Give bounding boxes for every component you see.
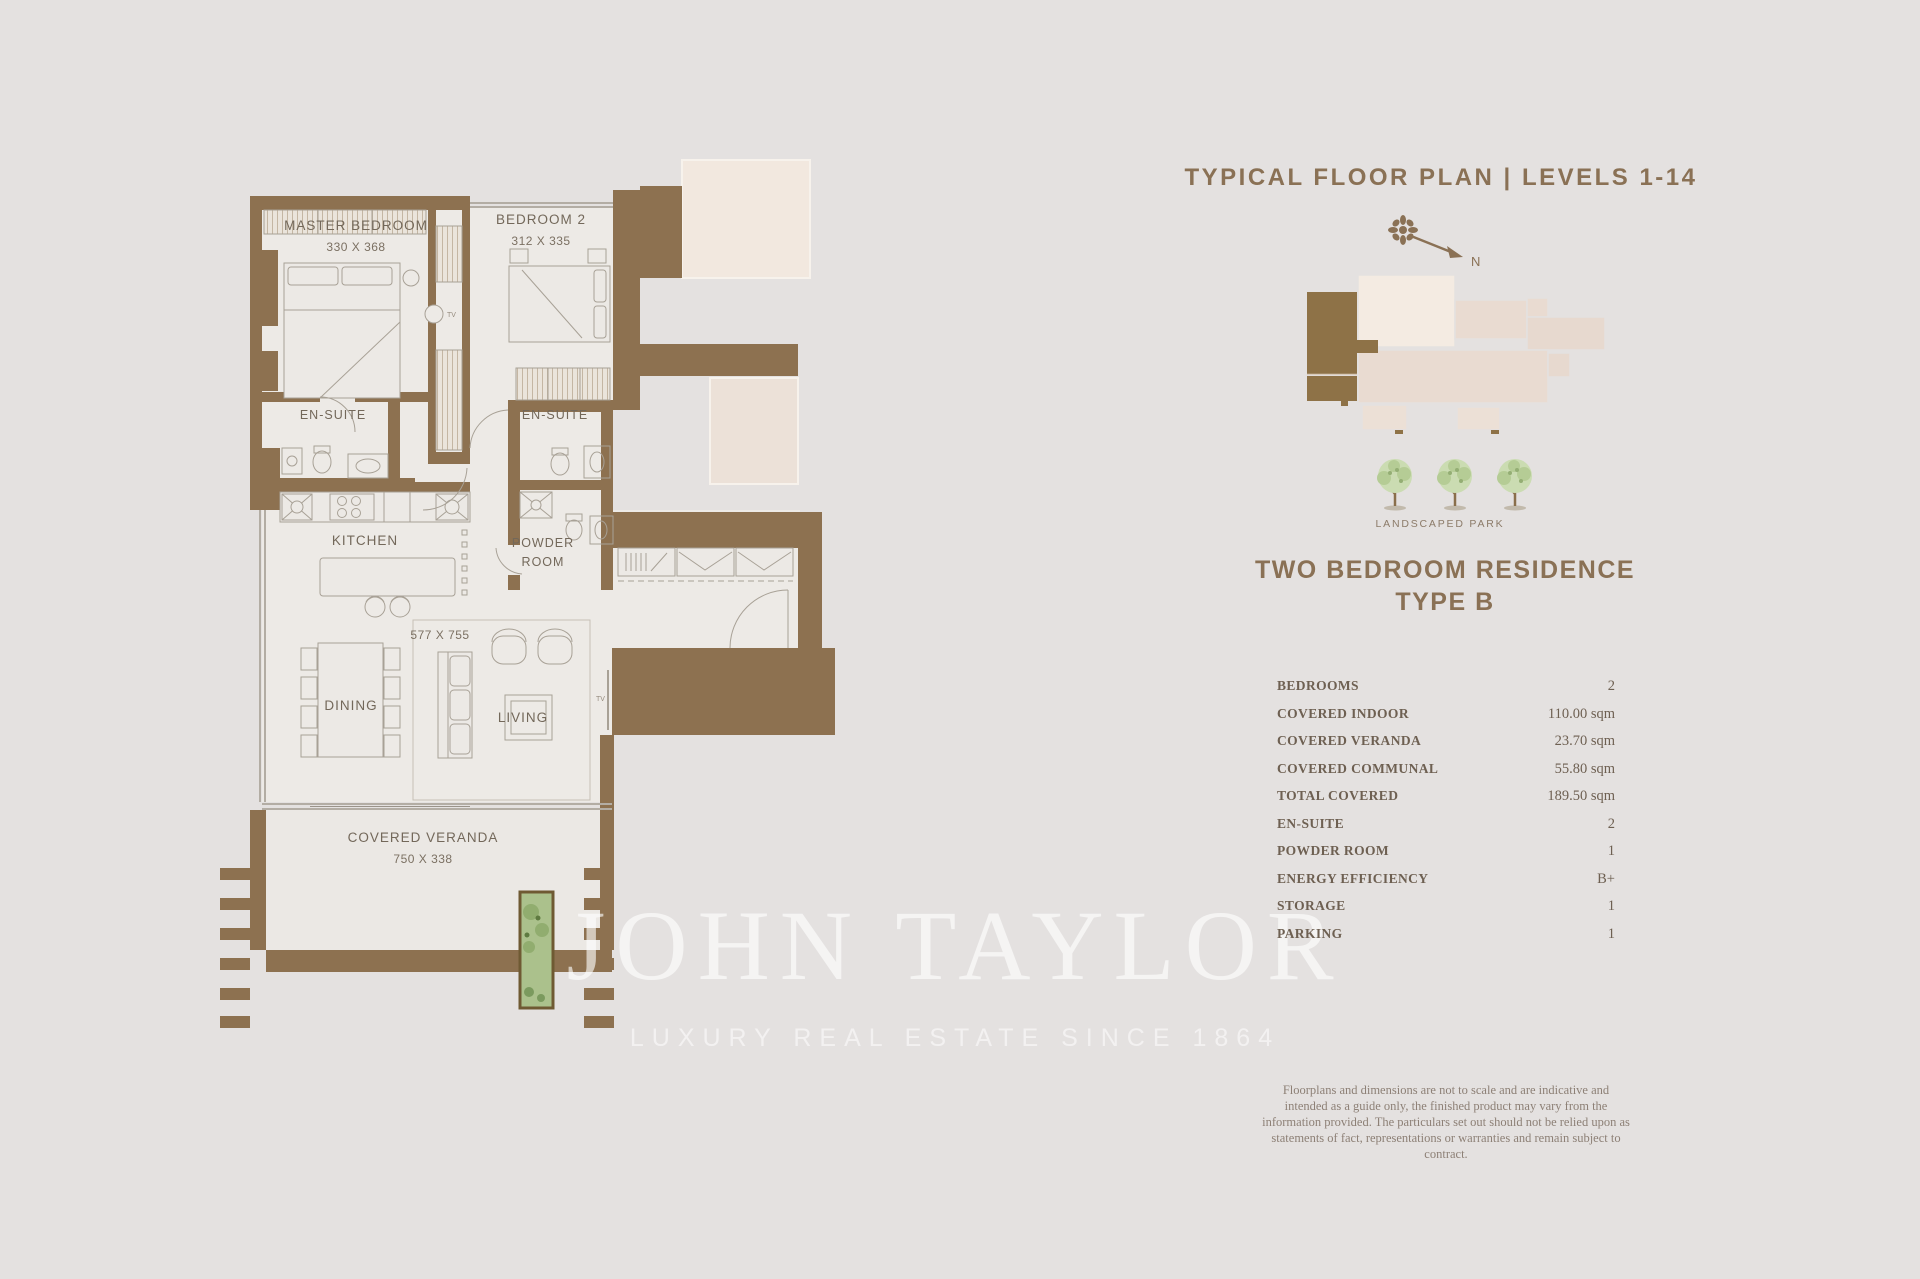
compass-north-label: N bbox=[1471, 254, 1481, 269]
spec-label: PARKING bbox=[1277, 926, 1343, 942]
spec-row-ensuite: EN-SUITE 2 bbox=[1277, 816, 1615, 833]
label-ensuite-right: EN-SUITE bbox=[495, 408, 615, 422]
residence-title-line1: TWO BEDROOM RESIDENCE bbox=[1145, 556, 1745, 585]
key-plan-mark-2 bbox=[1491, 430, 1499, 434]
label-living: LIVING bbox=[463, 710, 583, 725]
tree-icon bbox=[1437, 459, 1472, 511]
spec-label: EN-SUITE bbox=[1277, 816, 1344, 832]
label-master-bedroom: MASTER BEDROOM bbox=[266, 218, 446, 233]
label-covered-veranda-dims: 750 X 338 bbox=[323, 852, 523, 866]
spec-label: TOTAL COVERED bbox=[1277, 788, 1398, 804]
tree-icon bbox=[1377, 459, 1412, 511]
spec-value: 189.50 sqm bbox=[1547, 788, 1615, 805]
spec-row-total-covered: TOTAL COVERED 189.50 sqm bbox=[1277, 788, 1615, 805]
spec-label: COVERED COMMUNAL bbox=[1277, 761, 1438, 777]
watermark-brand: JOHN TAYLOR bbox=[545, 888, 1365, 1003]
label-kitchen: KITCHEN bbox=[305, 533, 425, 548]
label-powder-room: POWDER ROOM bbox=[502, 534, 584, 572]
tv-label-living: TV bbox=[596, 696, 605, 703]
spec-row-powder-room: POWDER ROOM 1 bbox=[1277, 843, 1615, 860]
compass-arrow-line bbox=[1411, 236, 1451, 252]
spec-value: 2 bbox=[1608, 816, 1615, 833]
compass-rosette bbox=[1388, 215, 1418, 245]
compass-arrowhead bbox=[1447, 246, 1463, 258]
spec-value: 23.70 sqm bbox=[1555, 733, 1615, 750]
spec-label: STORAGE bbox=[1277, 898, 1346, 914]
key-plan-blocks bbox=[1358, 275, 1605, 430]
specs-table: BEDROOMS 2 COVERED INDOOR 110.00 sqm COV… bbox=[1277, 678, 1615, 953]
label-bedroom-2-dims: 312 X 335 bbox=[471, 234, 611, 248]
disclaimer-text: Floorplans and dimensions are not to sca… bbox=[1260, 1082, 1632, 1162]
page-title: TYPICAL FLOOR PLAN | LEVELS 1-14 bbox=[1141, 164, 1741, 192]
brochure-page: TV TV MASTER BEDROOM 330 X 368 BEDROOM 2… bbox=[0, 0, 1920, 1279]
tv-label-closet: TV bbox=[447, 312, 456, 319]
label-living-dining-dims: 577 X 755 bbox=[380, 628, 500, 642]
landscaped-park-trees bbox=[1370, 456, 1540, 516]
landscaped-park-label: LANDSCAPED PARK bbox=[1290, 518, 1590, 530]
spec-label: POWDER ROOM bbox=[1277, 843, 1389, 859]
spec-row-covered-veranda: COVERED VERANDA 23.70 sqm bbox=[1277, 733, 1615, 750]
spec-row-storage: STORAGE 1 bbox=[1277, 898, 1615, 915]
communal-core bbox=[682, 160, 810, 484]
tree-icon bbox=[1497, 459, 1532, 511]
residence-title-line2: TYPE B bbox=[1145, 588, 1745, 617]
key-plan-mark-1 bbox=[1395, 430, 1403, 434]
spec-label: COVERED VERANDA bbox=[1277, 733, 1421, 749]
spec-value: 1 bbox=[1608, 926, 1615, 943]
label-master-bedroom-dims: 330 X 368 bbox=[266, 240, 446, 254]
spec-row-covered-indoor: COVERED INDOOR 110.00 sqm bbox=[1277, 706, 1615, 723]
label-covered-veranda: COVERED VERANDA bbox=[323, 830, 523, 845]
spec-value: 2 bbox=[1608, 678, 1615, 695]
spec-value: 1 bbox=[1608, 843, 1615, 860]
key-plan bbox=[1295, 272, 1625, 437]
spec-label: COVERED INDOOR bbox=[1277, 706, 1409, 722]
label-ensuite-left: EN-SUITE bbox=[273, 408, 393, 422]
spec-row-bedrooms: BEDROOMS 2 bbox=[1277, 678, 1615, 695]
spec-row-parking: PARKING 1 bbox=[1277, 926, 1615, 943]
spec-value: 55.80 sqm bbox=[1555, 761, 1615, 778]
spec-label: BEDROOMS bbox=[1277, 678, 1359, 694]
compass: N bbox=[1385, 210, 1495, 272]
label-dining: DINING bbox=[291, 698, 411, 713]
spec-label: ENERGY EFFICIENCY bbox=[1277, 871, 1428, 887]
spec-row-energy-efficiency: ENERGY EFFICIENCY B+ bbox=[1277, 871, 1615, 888]
label-bedroom-2: BEDROOM 2 bbox=[471, 212, 611, 227]
spec-row-covered-communal: COVERED COMMUNAL 55.80 sqm bbox=[1277, 761, 1615, 778]
spec-value: 1 bbox=[1608, 898, 1615, 915]
spec-value: B+ bbox=[1597, 871, 1615, 888]
watermark-tagline: LUXURY REAL ESTATE SINCE 1864 bbox=[550, 1024, 1360, 1053]
spec-value: 110.00 sqm bbox=[1548, 706, 1615, 723]
